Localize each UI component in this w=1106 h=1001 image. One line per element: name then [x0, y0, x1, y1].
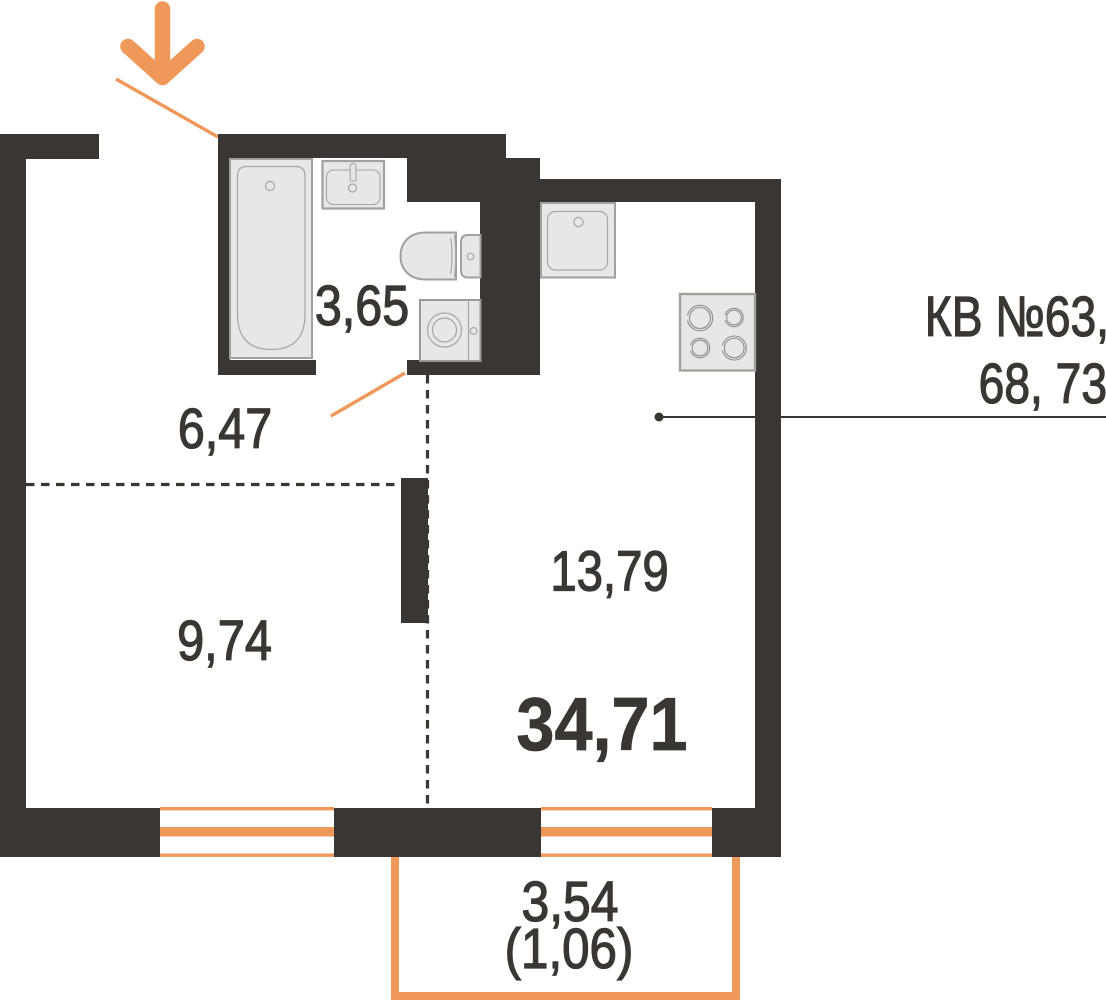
svg-text:34,71: 34,71 [516, 683, 687, 767]
svg-text:68, 73: 68, 73 [979, 351, 1106, 415]
svg-text:3,65: 3,65 [315, 274, 409, 338]
svg-text:9,74: 9,74 [177, 609, 272, 672]
svg-text:КВ №63,: КВ №63, [925, 284, 1106, 348]
svg-text:6,47: 6,47 [178, 397, 272, 461]
svg-text:13,79: 13,79 [550, 540, 668, 603]
svg-text:(1,06): (1,06) [505, 918, 634, 981]
